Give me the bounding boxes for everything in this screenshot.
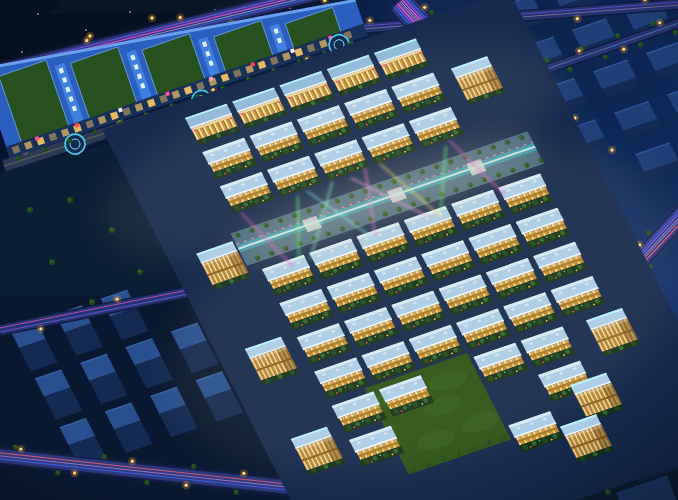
vignette-overlay — [0, 0, 678, 500]
aerial-night-rendering-viewport — [0, 0, 678, 500]
aerial-night-rendering — [0, 0, 678, 500]
